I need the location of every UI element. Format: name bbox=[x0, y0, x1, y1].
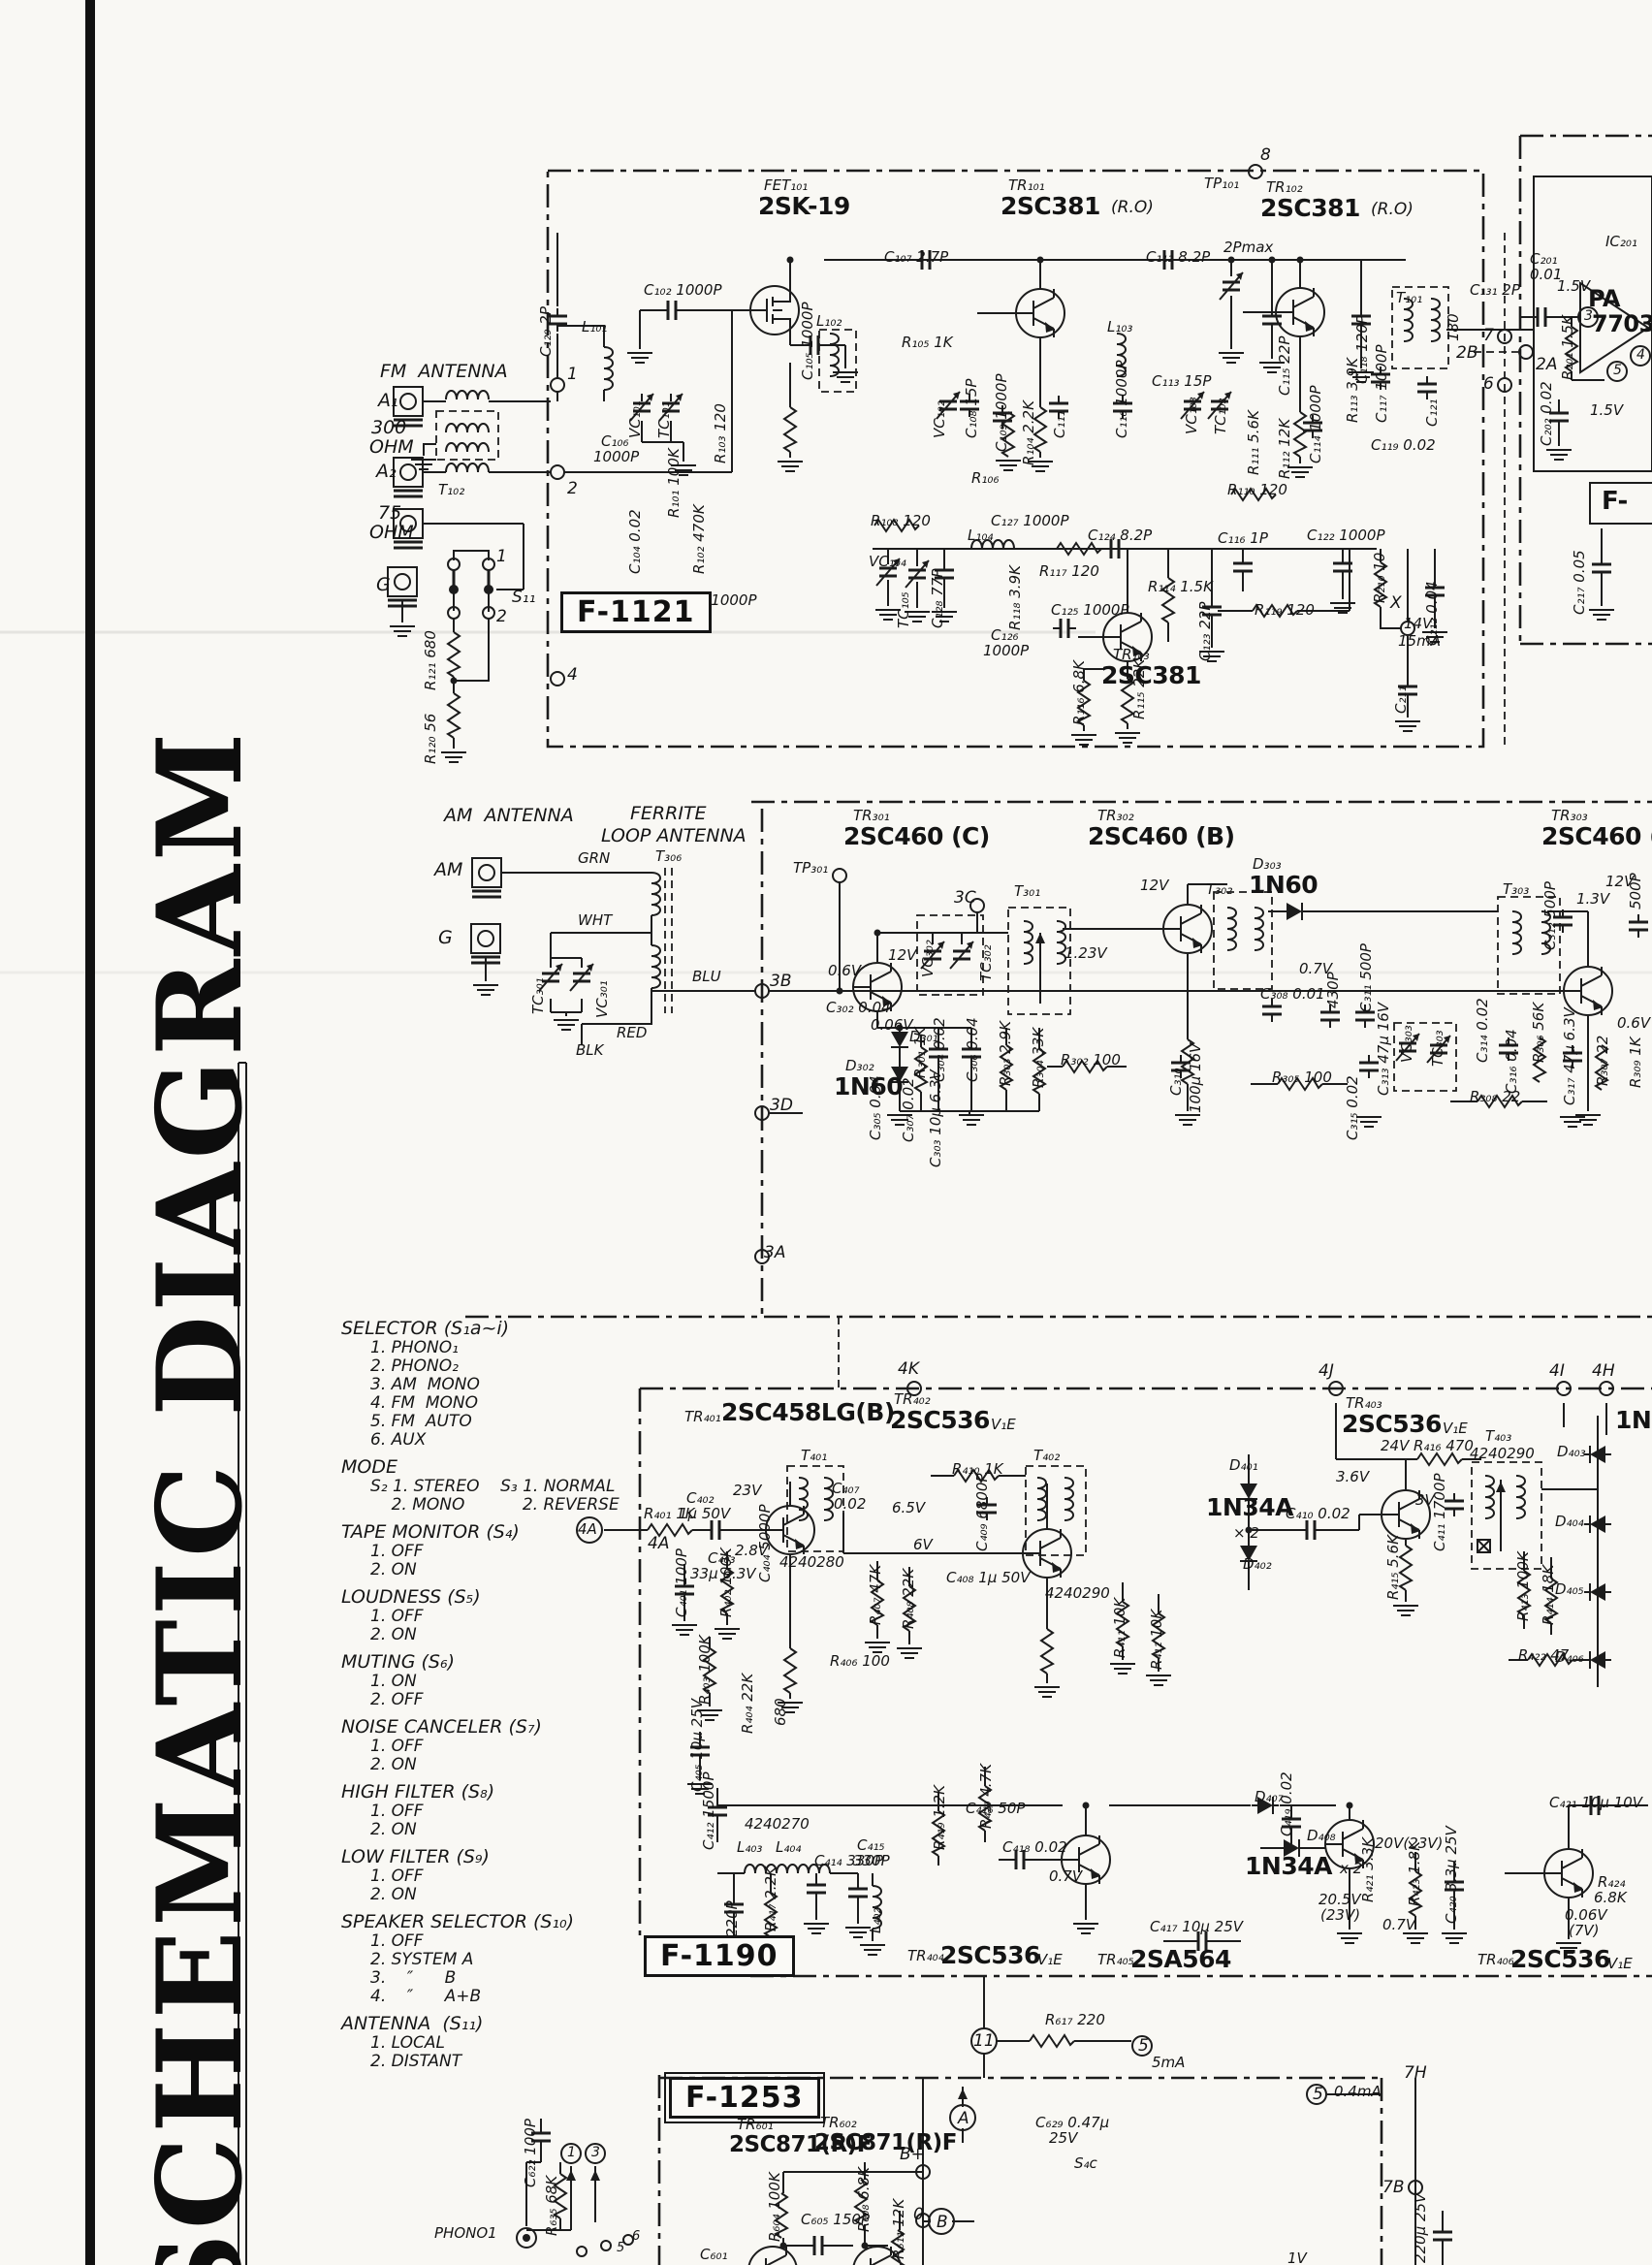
component-label: C₄₀₈ 1μ 50V bbox=[946, 1571, 1030, 1586]
component-label: R₁₀₂ 470K bbox=[692, 504, 708, 574]
component-label: (7V) bbox=[1569, 1924, 1600, 1939]
legend-heading: MUTING (S₆) bbox=[341, 1651, 700, 1673]
component-label: 2A bbox=[1536, 357, 1557, 374]
component-label: 2SA564 bbox=[1130, 1947, 1231, 1972]
component-label: R₁₁₈ 3.9K bbox=[1008, 565, 1024, 630]
component-label: C₄₀₉ 6800P bbox=[975, 1473, 991, 1551]
component-label: C₁₀₅ 1000P bbox=[801, 302, 816, 380]
component-label: C₄₀₁ 100P bbox=[675, 1548, 690, 1617]
component-label: PHONO1 bbox=[434, 2226, 497, 2242]
component-label: C₃₀₃ 10μ 6.3V bbox=[929, 1069, 944, 1167]
component-label: D₄₀₅ bbox=[1555, 1582, 1584, 1598]
component-label: R₆₁₇ 220 bbox=[1045, 2013, 1105, 2028]
component-label: 7 bbox=[1483, 328, 1494, 345]
component-label: R₁₁₂ 12K bbox=[1278, 419, 1293, 479]
component-label: C₁₁₅ 22P bbox=[1278, 336, 1293, 396]
component-label: 3B bbox=[770, 973, 791, 991]
legend-item: 2. DISTANT bbox=[370, 2053, 700, 2071]
component-label: 1.3V bbox=[1576, 892, 1609, 908]
component-label: V₁E bbox=[1607, 1957, 1633, 1972]
component-label: 0.7V bbox=[1382, 1918, 1415, 1933]
component-label: 4 bbox=[1636, 348, 1645, 363]
component-label: R₃₀₇ 22 bbox=[1596, 1036, 1611, 1086]
component-label: R₆₁₁ 12K bbox=[892, 2199, 907, 2259]
component-label: V₁E bbox=[991, 1418, 1016, 1433]
component-label: R₄₂₀ 4.7K bbox=[979, 1764, 995, 1829]
component-label: 1N34A bbox=[1206, 1495, 1293, 1520]
component-label: VC₁₀₂ bbox=[933, 400, 948, 438]
component-label: C₁₁₉ 0.02 bbox=[1371, 438, 1436, 454]
component-label: VC₃₀₃ bbox=[1400, 1025, 1415, 1063]
component-label: VC₁₀₃ bbox=[1185, 397, 1200, 434]
component-label: 1N34A bbox=[1245, 1854, 1332, 1879]
component-label: 25V bbox=[1049, 2131, 1077, 2147]
legend-item: 5. FM AUTO bbox=[370, 1413, 700, 1431]
component-label: R₄₀₈ 22K bbox=[902, 1569, 917, 1629]
component-label: C₄₂₀ 3.3μ 25V bbox=[1445, 1826, 1460, 1924]
component-label: 0.06V bbox=[871, 1018, 913, 1034]
component-label: C₁₁₁ bbox=[1053, 410, 1068, 438]
component-label: 12V bbox=[1140, 878, 1168, 894]
component-label: 2SC871(R)F bbox=[814, 2131, 957, 2154]
component-label: 2SC536 bbox=[1510, 1947, 1610, 1972]
component-label: C₁₀₈ 15P bbox=[965, 379, 980, 438]
component-label: 5 bbox=[1313, 2087, 1323, 2104]
component-label: × 2 bbox=[1233, 1526, 1259, 1542]
component-label: WHT bbox=[578, 913, 612, 929]
component-label: 2 bbox=[496, 609, 507, 626]
legend-item: 4. ″ A+B bbox=[370, 1988, 700, 2006]
component-label: 1.5V bbox=[1590, 403, 1623, 419]
component-label: 5mA bbox=[1152, 2056, 1185, 2071]
legend-item: 2. ON bbox=[370, 1626, 700, 1644]
component-label: C₁₀₉ 1000P bbox=[995, 373, 1010, 452]
component-label: V₁E bbox=[1443, 1421, 1468, 1437]
component-label: D₄₀₈ bbox=[1307, 1829, 1336, 1844]
component-label: (R.O) bbox=[1111, 200, 1154, 217]
component-label: C₁₂₉ 2P bbox=[539, 306, 555, 357]
legend-item: 2. ON bbox=[370, 1821, 700, 1839]
component-label: C₄₁₂ 1500P bbox=[702, 1771, 717, 1850]
component-label: C₃₁₀ bbox=[1169, 1068, 1185, 1096]
component-label: 5 bbox=[1138, 2038, 1149, 2056]
component-label: L₄₀₃ bbox=[737, 1840, 762, 1856]
legend-heading: ANTENNA (S₁₁) bbox=[341, 2013, 700, 2034]
component-label: TC₁₀₃ bbox=[1214, 398, 1229, 434]
component-label: C₃₁₅ 0.02 bbox=[1346, 1075, 1361, 1140]
component-label: 24V bbox=[1381, 1439, 1409, 1454]
component-label: C₃₁₇ 47μ 6.3V bbox=[1563, 1007, 1578, 1105]
component-label: 4H bbox=[1592, 1363, 1615, 1381]
component-label: 430P bbox=[1326, 972, 1342, 1008]
component-label: L₁₀₂ bbox=[816, 314, 842, 330]
component-label: 1 bbox=[567, 2146, 576, 2160]
component-label: OHM bbox=[369, 524, 414, 543]
component-label: 2SC536 bbox=[890, 1408, 990, 1433]
component-label: R₆₀₄ 100K bbox=[768, 2172, 783, 2242]
component-label: TC₃₀₁ bbox=[531, 977, 547, 1014]
component-label: S₁₁ bbox=[512, 590, 535, 607]
component-label: TR₆₀₁ bbox=[737, 2118, 774, 2133]
component-label: VC₃₀₂ bbox=[921, 940, 937, 977]
component-label: C₁₁₃ 15P bbox=[1152, 374, 1211, 390]
component-label: R₄₀₆ 100 bbox=[830, 1654, 890, 1670]
legend-item: 1. ON bbox=[370, 1673, 700, 1691]
component-label: 4J bbox=[1318, 1363, 1334, 1381]
component-label: TR₆₀₂ bbox=[820, 2116, 857, 2131]
component-label: C₄₁₀ 0.02 bbox=[1286, 1507, 1350, 1522]
component-label: R₄₀₇ 47K bbox=[869, 1565, 884, 1625]
component-label: G bbox=[438, 929, 453, 948]
component-label: R₃₀₅ 100 bbox=[1272, 1070, 1332, 1086]
component-label: 2SC460 (B) bbox=[1541, 824, 1652, 849]
component-label: 2Pmax bbox=[1223, 240, 1273, 256]
component-label: C₃₀₂ 0.04 bbox=[826, 1001, 891, 1016]
component-label: C₃₁₁ 500P bbox=[1359, 943, 1375, 1012]
legend-item: 1. OFF bbox=[370, 1738, 700, 1756]
component-label: GRN bbox=[578, 851, 610, 867]
component-label: 11 bbox=[973, 2033, 995, 2051]
component-label: 4240290 bbox=[1470, 1447, 1535, 1462]
component-label: D₄₀₁ bbox=[1229, 1458, 1258, 1474]
component-label: D₄₀₃ bbox=[1557, 1445, 1586, 1460]
component-label: 2SC460 (B) bbox=[1088, 824, 1235, 849]
component-label: C₆₂₂ 100P bbox=[524, 2119, 539, 2187]
component-label: 4K bbox=[898, 1361, 919, 1379]
component-label: R₄₀₄ 22K bbox=[741, 1674, 756, 1734]
component-label: 4A bbox=[648, 1536, 669, 1553]
component-label: TC₁₀₁ bbox=[657, 401, 673, 438]
component-label: T₃₀₆ bbox=[655, 849, 682, 865]
component-label: 3C bbox=[954, 890, 976, 908]
component-label: T₃₀₁ bbox=[1014, 884, 1040, 900]
component-label: C₂₁₂ 0.04 bbox=[1425, 581, 1441, 646]
component-label: C₁₁₂ 8.2P bbox=[1146, 250, 1210, 266]
component-label: T₄₀₃ bbox=[1485, 1429, 1511, 1445]
component-label: R₁₀₅ 1K bbox=[902, 335, 953, 351]
legend-item: 1. OFF bbox=[370, 1608, 700, 1626]
component-label: R₆₀₈ 6.8K bbox=[857, 2167, 873, 2232]
component-label: C₄₁₉ 0.02 bbox=[1280, 1771, 1295, 1836]
component-label: R₂₀₁ 1.5K bbox=[1561, 315, 1576, 380]
component-label: R₄₀₂ 100K bbox=[719, 1547, 735, 1617]
component-label: (23V) bbox=[1320, 1908, 1360, 1924]
component-label: 1 bbox=[496, 549, 507, 566]
component-label: R₁₁₀ 120 bbox=[1227, 483, 1287, 498]
component-label: 1000P bbox=[983, 644, 1029, 659]
component-label: 5 bbox=[1613, 364, 1622, 378]
component-label: 180 bbox=[1446, 313, 1462, 341]
component-label: 2B bbox=[1456, 345, 1477, 363]
legend-heading: LOUDNESS (S₅) bbox=[341, 1586, 700, 1608]
component-label: 1N34 bbox=[1615, 1408, 1652, 1433]
legend-item: 2. OFF bbox=[370, 1691, 700, 1709]
component-label: 220μ 25V bbox=[1414, 2193, 1429, 2263]
component-label: 1μ 50V bbox=[679, 1507, 730, 1522]
component-label: 75 bbox=[378, 504, 401, 524]
component-label: C₆₀₁ bbox=[700, 2248, 728, 2263]
component-label: VC₁₀₄ bbox=[869, 555, 906, 570]
component-label: C₁₂₇ 1000P bbox=[991, 514, 1069, 529]
component-label: R₄₁₆ 470 bbox=[1414, 1439, 1474, 1454]
component-label: R₁₁₆ 6.8K bbox=[1072, 660, 1088, 725]
schematic-title: SCHEMATIC DIAGRAM bbox=[132, 728, 269, 2265]
component-label: 12V bbox=[888, 948, 916, 964]
legend-item: 1. PHONO₁ bbox=[370, 1339, 700, 1357]
component-label: FM ANTENNA bbox=[380, 363, 508, 382]
component-label: TR₄₀₄ bbox=[907, 1949, 944, 1964]
component-label: (R.O) bbox=[1371, 202, 1414, 219]
component-label: C₄₁₈ 0.02 bbox=[1002, 1840, 1067, 1856]
component-label: 2SC381 bbox=[1001, 194, 1100, 219]
board-label: F-1253 bbox=[669, 2077, 820, 2119]
component-label: C₂₁₁ bbox=[1394, 686, 1410, 714]
component-label: R₃₀₆ 56K bbox=[1532, 1003, 1547, 1063]
component-label: T₃₀₂ bbox=[1206, 882, 1232, 898]
component-label: R₂₁₀ 10 bbox=[1373, 553, 1388, 603]
legend-item: 4. FM MONO bbox=[370, 1394, 700, 1413]
component-label: VC₁₀₁ bbox=[628, 400, 644, 438]
component-label: 680 bbox=[774, 1698, 789, 1726]
component-label: C₃₁₆ 0.04 bbox=[1505, 1029, 1520, 1094]
component-label: 2 bbox=[567, 481, 578, 498]
component-label: C₁₂₁ bbox=[1425, 399, 1441, 427]
legend-item: 1. OFF bbox=[370, 1867, 700, 1886]
component-label: 6.8K bbox=[1594, 1891, 1627, 1906]
component-label: R₃₀₉ 1K bbox=[1629, 1037, 1644, 1088]
legend-item: 2. PHONO₂ bbox=[370, 1357, 700, 1376]
legend-item: 3. AM MONO bbox=[370, 1376, 700, 1394]
component-label: 0.6V bbox=[828, 964, 861, 979]
legend-heading: LOW FILTER (S₉) bbox=[341, 1846, 700, 1867]
legend-item: 2. ON bbox=[370, 1561, 700, 1579]
component-label: D₄₀₄ bbox=[1555, 1515, 1584, 1530]
component-label: R₁₁₁ 5.6K bbox=[1247, 410, 1262, 475]
component-label: R₁₀₃ 120 bbox=[714, 403, 729, 463]
component-label: T₄₀₂ bbox=[1033, 1449, 1060, 1464]
component-label: TP₃₀₁ bbox=[793, 861, 828, 877]
component-label: TC₁₀₅ bbox=[897, 591, 912, 628]
component-label: 3.6V bbox=[1336, 1470, 1369, 1485]
component-label: C₁₂₂ 1000P bbox=[1307, 528, 1385, 544]
component-label: 2SC458LG(B) bbox=[721, 1400, 895, 1425]
component-label: R₁₁₅ 22K bbox=[1132, 659, 1148, 719]
component-label: R₄₁₃ 100K bbox=[1516, 1551, 1532, 1621]
component-label: C₁₁₆ 1P bbox=[1218, 531, 1268, 547]
component-label: C₁₂₄ 8.2P bbox=[1088, 528, 1152, 544]
legend-heading: MODE bbox=[341, 1456, 700, 1478]
component-label: 6 bbox=[1483, 376, 1494, 394]
component-label: R₄₁₉ 1.2K bbox=[933, 1785, 948, 1850]
page-edge-bar bbox=[85, 0, 95, 2265]
component-label: R₄₁₇ 2.2K bbox=[764, 1866, 779, 1931]
component-label: C₃₀₈ 0.01 bbox=[1260, 987, 1325, 1003]
legend-heading: SPEAKER SELECTOR (S₁₀) bbox=[341, 1911, 700, 1932]
component-label: 2SC460 (C) bbox=[843, 824, 990, 849]
component-label: 0.6V bbox=[1617, 1016, 1650, 1032]
component-label: TR₄₀₁ bbox=[684, 1410, 721, 1425]
component-label: 2SC381 bbox=[1260, 196, 1360, 221]
component-label: R₁₀₄ 2.2K bbox=[1022, 400, 1037, 465]
component-label: AM ANTENNA bbox=[444, 807, 574, 826]
component-label: R₃₀₄ 33K bbox=[1032, 1028, 1047, 1088]
component-label: 1.23V bbox=[1064, 946, 1107, 962]
component-label: R₁₂₀ 56 bbox=[424, 714, 439, 764]
component-label: 1V bbox=[1287, 2251, 1307, 2265]
component-label: B bbox=[937, 2215, 948, 2232]
component-label: 2SC536 bbox=[1342, 1412, 1442, 1437]
component-label: 4240280 bbox=[779, 1555, 844, 1571]
component-label: 7B bbox=[1382, 2180, 1404, 2197]
board-label: F-1190 bbox=[644, 1935, 795, 1977]
component-label: G bbox=[376, 576, 391, 595]
component-label: 7703 bbox=[1592, 312, 1652, 336]
legend-item: 1. LOCAL bbox=[370, 2034, 700, 2053]
component-label: VC₃₀₁ bbox=[595, 980, 611, 1018]
component-label: 1000P bbox=[593, 450, 639, 465]
component-label: A bbox=[958, 2111, 969, 2128]
component-label: 4 bbox=[567, 667, 578, 685]
component-label: 4240290 bbox=[1045, 1586, 1110, 1602]
component-label: 6.5V bbox=[892, 1501, 925, 1516]
component-label: L₄₀₄ bbox=[776, 1840, 801, 1856]
component-label: 6 bbox=[632, 2230, 640, 2244]
component-label: T₁₀₂ bbox=[438, 483, 464, 498]
component-label: R₁₂₁ 680 bbox=[424, 630, 439, 690]
component-label: R₁₀₁ 100K bbox=[667, 448, 683, 518]
component-label: C₃₀₅ 0.04 bbox=[869, 1075, 884, 1140]
component-label: C₁₁₇ 1000P bbox=[1375, 344, 1390, 423]
component-label: L₁₀₃ bbox=[1107, 320, 1132, 335]
component-label: L₁₀₄ bbox=[968, 528, 993, 544]
component-label: C₃₀₆ 0.04 bbox=[966, 1017, 981, 1082]
component-label: C₁₁₀ 1000P bbox=[1115, 360, 1130, 438]
component-label: B+ bbox=[900, 2147, 925, 2164]
component-label: 220P bbox=[725, 1900, 741, 1937]
component-label: 3D bbox=[770, 1098, 793, 1115]
component-label: LOOP ANTENNA bbox=[601, 827, 747, 846]
component-label: 7H bbox=[1404, 2065, 1427, 2083]
component-label: 0.02 bbox=[834, 1497, 866, 1513]
component-label: C₁₀₂ 1000P bbox=[644, 283, 722, 299]
component-label: 300 bbox=[371, 419, 406, 438]
component-label: C₁₁₈ 120P bbox=[1355, 315, 1371, 384]
component-label: 3A bbox=[764, 1245, 785, 1262]
component-label: V₁E bbox=[1037, 1953, 1063, 1968]
component-label: 23V bbox=[733, 1483, 761, 1499]
component-label: T₃₀₃ bbox=[1503, 882, 1529, 898]
legend-item: 2. ON bbox=[370, 1756, 700, 1774]
component-label: TP₁₀₁ bbox=[1204, 176, 1239, 192]
component-label: T₄₀₁ bbox=[801, 1449, 827, 1464]
component-label: X bbox=[1390, 595, 1402, 613]
component-label: 1N60 bbox=[1249, 873, 1318, 898]
component-label: 3 bbox=[591, 2146, 600, 2160]
board-label: F-1121 bbox=[560, 591, 712, 633]
schematic-page: SCHEMATIC DIAGRAM SELECTOR (S₁a~i)1. PHO… bbox=[0, 0, 1652, 2265]
component-label: 1 bbox=[567, 367, 578, 384]
component-label: 3 bbox=[1584, 309, 1593, 324]
component-label: C₁₂₅ 1000P bbox=[1051, 603, 1129, 619]
component-label: R₄₁₄ 18K bbox=[1541, 1565, 1557, 1625]
component-label: 4A bbox=[578, 1522, 597, 1538]
component-label: C₁₁₄ 1000P bbox=[1309, 385, 1324, 463]
component-label: 1.5V bbox=[1557, 279, 1590, 295]
component-label: 2SK-19 bbox=[758, 194, 850, 219]
component-label: PA bbox=[1588, 287, 1620, 311]
component-label: L₄₀₂ bbox=[869, 1908, 884, 1933]
component-label: 100μ 16V bbox=[1189, 1043, 1204, 1113]
component-label: R₁₀₈ 120 bbox=[871, 514, 931, 529]
legend-heading: NOISE CANCELER (S₇) bbox=[341, 1716, 700, 1738]
legend-item: 1. OFF bbox=[370, 1802, 700, 1821]
legend-heading: TAPE MONITOR (S₄) bbox=[341, 1521, 700, 1543]
component-label: D₄₀₂ bbox=[1243, 1557, 1272, 1573]
component-label: RED bbox=[617, 1026, 647, 1041]
component-label: 500P bbox=[1629, 873, 1644, 909]
component-label: C₄₁₇ 10μ 25V bbox=[1150, 1920, 1243, 1935]
component-label: C₂₁₇ 0.05 bbox=[1573, 550, 1588, 615]
component-label: A₁ bbox=[378, 392, 398, 411]
component-label: C₃₀₇ 0.02 bbox=[902, 1077, 917, 1142]
component-label: FERRITE bbox=[630, 805, 707, 824]
component-label: 2.8V bbox=[735, 1544, 768, 1559]
component-label: F- bbox=[1602, 489, 1628, 515]
component-label: C₄₁₁ 1700P bbox=[1433, 1473, 1448, 1551]
component-label: R₃₀₃ 2.9K bbox=[999, 1021, 1014, 1086]
component-label: T₁₀₁ bbox=[1396, 291, 1422, 306]
component-label: BLK bbox=[576, 1043, 603, 1059]
component-label: R₄₁₁ 10K bbox=[1113, 1598, 1128, 1658]
component-label: R₄₁₅ 5.6K bbox=[1386, 1535, 1402, 1600]
component-label: R₁₁₉ 120 bbox=[1255, 603, 1315, 619]
legend-heading: HIGH FILTER (S₈) bbox=[341, 1781, 700, 1802]
component-label: R₄₀₃ 100K bbox=[698, 1635, 714, 1705]
component-label: C₃₁₃ 47μ 16V bbox=[1377, 1003, 1392, 1096]
component-label: IC₂₀₁ bbox=[1605, 235, 1637, 250]
component-label: 0 bbox=[913, 2207, 924, 2224]
component-label: 2SC536 bbox=[940, 1943, 1040, 1968]
component-label: C₁₂₃ 22P bbox=[1198, 602, 1214, 661]
component-label: C₁₀₇ 2.7P bbox=[884, 250, 948, 266]
component-label: C₁₂₈ 77P bbox=[931, 569, 946, 628]
component-label: TR₄₀₅ bbox=[1097, 1953, 1134, 1968]
component-label: S₄c bbox=[1074, 2156, 1097, 2172]
component-label: C₁₀₄ 0.02 bbox=[628, 509, 644, 574]
component-label: R₆₃₅ 68K bbox=[545, 2176, 560, 2236]
legend-item: S₂ 1. STEREO S₃ 1. NORMAL bbox=[370, 1478, 700, 1496]
component-label: OHM bbox=[369, 438, 414, 458]
legend-heading: SELECTOR (S₁a~i) bbox=[341, 1318, 700, 1339]
component-label: R₁₁₇ 120 bbox=[1039, 564, 1099, 580]
component-label: 330P bbox=[853, 1854, 890, 1869]
component-label: R₄₂₃ 1.8K bbox=[1408, 1841, 1423, 1906]
component-label: 4I bbox=[1549, 1363, 1565, 1381]
component-label: TC₃₀₂ bbox=[979, 944, 995, 981]
legend-item: 6. AUX bbox=[370, 1431, 700, 1450]
component-label: 8 bbox=[1260, 147, 1271, 165]
legend-item: 2. ON bbox=[370, 1886, 700, 1904]
component-label: R₃₀₂ 100 bbox=[1061, 1053, 1121, 1069]
component-label: C₄₂₁ 10μ 10V bbox=[1549, 1796, 1642, 1811]
component-label: A₂ bbox=[376, 463, 397, 482]
component-label: R₄₁₂ 10K bbox=[1150, 1610, 1165, 1670]
component-label: TC₃₀₃ bbox=[1431, 1030, 1446, 1067]
component-label: 0.7V bbox=[1049, 1869, 1082, 1885]
component-label: L₁₀₁ bbox=[582, 320, 607, 335]
component-label: C₃₁₂ 500P bbox=[1543, 881, 1559, 950]
component-label: C₃₁₄ 0.02 bbox=[1476, 998, 1491, 1063]
